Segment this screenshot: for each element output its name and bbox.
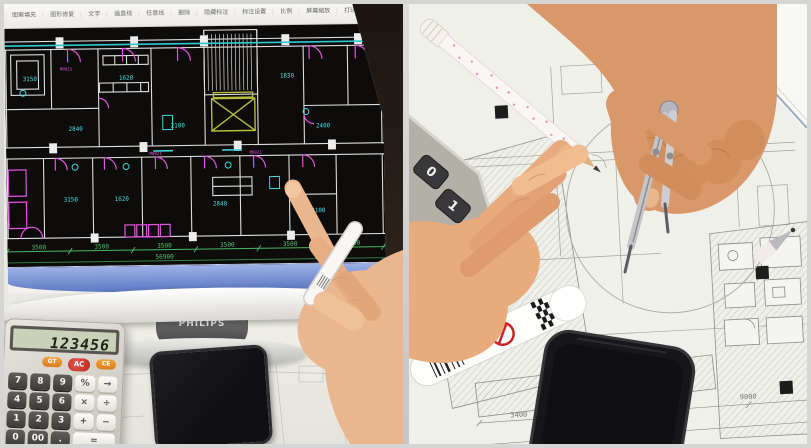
cad-walls [4, 28, 385, 239]
photo-collage: 图案填充 图形修复 文字 画直线 任意线 删除 隐藏标注 标注设置 比例 屏幕缩… [0, 0, 811, 448]
calculator-key-gt: GT [42, 357, 62, 368]
dimension-label: 3500 [157, 242, 172, 249]
dimension-label: 7000 [346, 240, 361, 247]
dimension-label: 3500 [283, 241, 298, 248]
room-label: 1620 [115, 196, 130, 203]
calculator-key: 3 [51, 412, 71, 429]
smartphone [149, 344, 274, 444]
right-photo-blueprint-work: 3400 9000 30700 2000 0 1 4 7 [409, 4, 807, 444]
calculator-key: . [50, 431, 70, 444]
door-tag: M0921 [250, 149, 263, 154]
cad-menu-item: 屏幕缩放 [306, 8, 337, 14]
cad-menu-item: 标注设置 [242, 9, 273, 15]
room-label: 1620 [119, 75, 134, 82]
left-photo-cad-monitor: 图案填充 图形修复 文字 画直线 任意线 删除 隐藏标注 标注设置 比例 屏幕缩… [4, 4, 403, 444]
cad-menu-item: 图案填充 [12, 12, 43, 18]
cad-menu-item: 比例 [280, 9, 299, 15]
door-tag: M0921 [149, 151, 162, 156]
dimension-label: 3500 [220, 242, 235, 249]
cad-menu-item: 图形修复 [50, 12, 81, 18]
calculator-key-ac: AC [68, 358, 91, 372]
dimension-label: 9000 [740, 393, 757, 402]
cad-menu-item: 隐藏标注 [204, 10, 235, 16]
calculator-key: = [73, 432, 115, 444]
calculator-key: % [75, 375, 95, 392]
room-label: 2100 [171, 122, 186, 129]
dimension-label: 3500 [31, 244, 46, 251]
cad-elevator [211, 92, 255, 131]
room-label: 1830 [280, 72, 295, 79]
cad-drawing-area: 3150 2840 1620 2100 1830 2400 3150 1620 … [4, 24, 385, 269]
dimension-label: 3400 [510, 411, 527, 420]
cad-menu-item: 删除 [178, 10, 197, 16]
calculator-display-value: 123456 [48, 334, 111, 354]
calculator-display: 123456 [10, 325, 120, 355]
cad-dimensions: 3500 3500 3500 3500 3500 7000 56900 [5, 239, 385, 262]
door-tag: M0921 [60, 66, 73, 71]
calculator-key: × [74, 394, 94, 411]
calculator-key: − [96, 414, 116, 431]
dimension-label: 3500 [94, 243, 109, 250]
calculator-key: 8 [30, 373, 50, 390]
cad-floor-plan: 3150 2840 1620 2100 1830 2400 3150 1620 … [4, 24, 385, 269]
room-label: 3150 [64, 196, 79, 203]
cad-fixtures [20, 86, 310, 192]
room-label: 2840 [213, 200, 228, 207]
calculator-key: ÷ [97, 395, 117, 412]
calculator-key: 6 [52, 393, 72, 410]
calculator-key: 0 [5, 429, 25, 444]
calculator-key-ce: CE [96, 359, 116, 370]
room-label: 3150 [23, 76, 38, 83]
calculator-key: 5 [29, 392, 49, 409]
calculator-key: + [73, 413, 93, 430]
calculator-key: 00 [28, 430, 48, 444]
blueprint-scene: 3400 9000 30700 2000 0 1 4 7 [409, 4, 807, 444]
cad-menu-item: 任意线 [146, 11, 171, 17]
calculator-function-row: GT AC CE [9, 355, 116, 373]
calculator-key: 7 [8, 372, 28, 389]
calculator: 123456 GT AC CE 7 8 9 % → 4 5 6 × ÷ 1 2 … [4, 318, 126, 444]
cad-menu-item: 文字 [88, 12, 107, 18]
total-dimension-label: 56900 [155, 254, 174, 261]
cad-menu-item: 画直线 [114, 11, 139, 17]
calculator-key: 4 [7, 391, 27, 408]
calculator-key: 1 [6, 410, 26, 427]
room-label: 2400 [316, 122, 331, 129]
calculator-key: → [97, 376, 117, 393]
monitor-screen: 图案填充 图形修复 文字 画直线 任意线 删除 隐藏标注 标注设置 比例 屏幕缩… [4, 4, 386, 294]
calculator-key: 9 [53, 374, 73, 391]
calculator-keypad: 7 8 9 % → 4 5 6 × ÷ 1 2 3 + − 0 00 . = [5, 372, 117, 444]
room-label: 2100 [311, 207, 326, 214]
calculator-key: 2 [29, 411, 49, 428]
room-label: 2840 [69, 126, 84, 133]
